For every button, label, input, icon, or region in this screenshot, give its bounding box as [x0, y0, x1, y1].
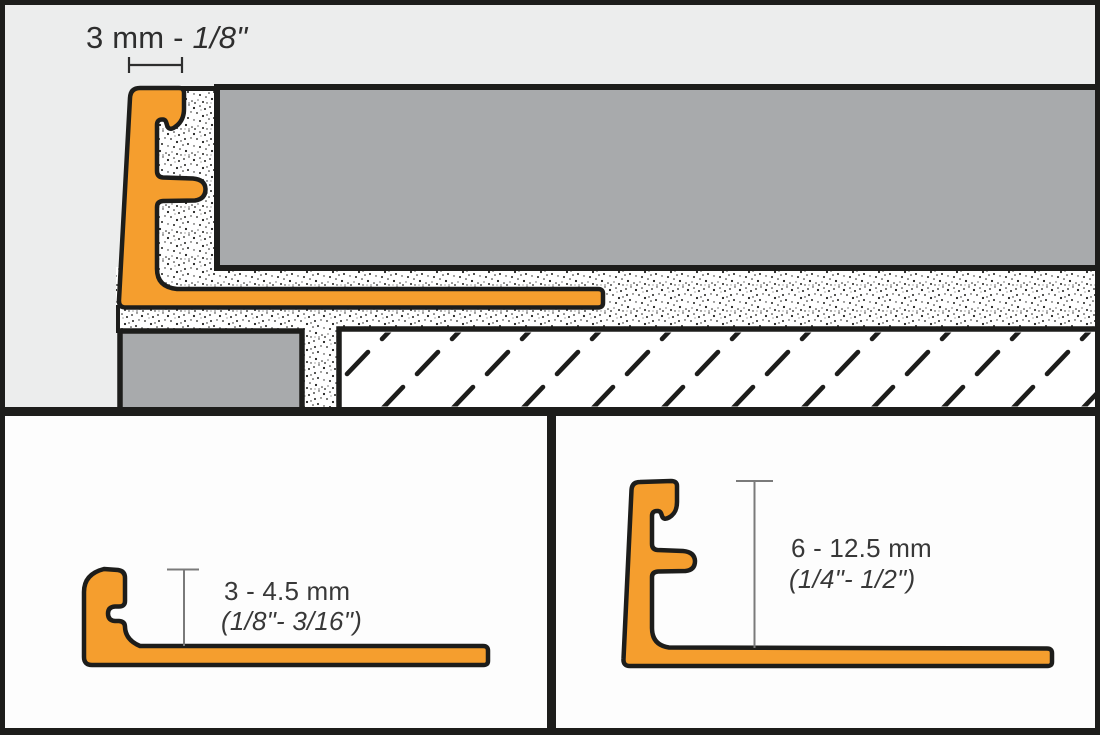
profile-diagram-page: 3 mm - 1/8" 3 - 4.5 mm (1/8"- 3/16") 6 -… — [0, 0, 1100, 735]
dimension-line-3mm — [129, 57, 182, 73]
small-profile-diagram — [5, 416, 547, 728]
tile-cross-section — [217, 87, 1095, 268]
mortar-vertical-strip — [303, 318, 340, 407]
large-profile-imperial-label: (1/4"- 1/2") — [789, 565, 915, 594]
dimension-label-3mm: 3 mm - 1/8" — [86, 21, 247, 55]
dimension-line-small-profile — [167, 570, 199, 647]
small-profile-panel — [5, 416, 547, 728]
substrate-hatch — [343, 333, 1096, 407]
base-layer-block — [120, 331, 302, 407]
small-profile-metric-label: 3 - 4.5 mm — [224, 577, 350, 606]
large-profile-metric-label: 6 - 12.5 mm — [791, 534, 932, 563]
dimension-label-3mm-fraction: 1/8" — [192, 20, 247, 55]
installation-diagram — [5, 5, 1095, 407]
installation-cross-section-panel — [5, 5, 1095, 407]
dimension-line-large-profile — [736, 481, 773, 648]
dimension-label-3mm-prefix: 3 mm - — [86, 20, 192, 55]
small-profile-imperial-label: (1/8"- 3/16") — [221, 607, 362, 636]
